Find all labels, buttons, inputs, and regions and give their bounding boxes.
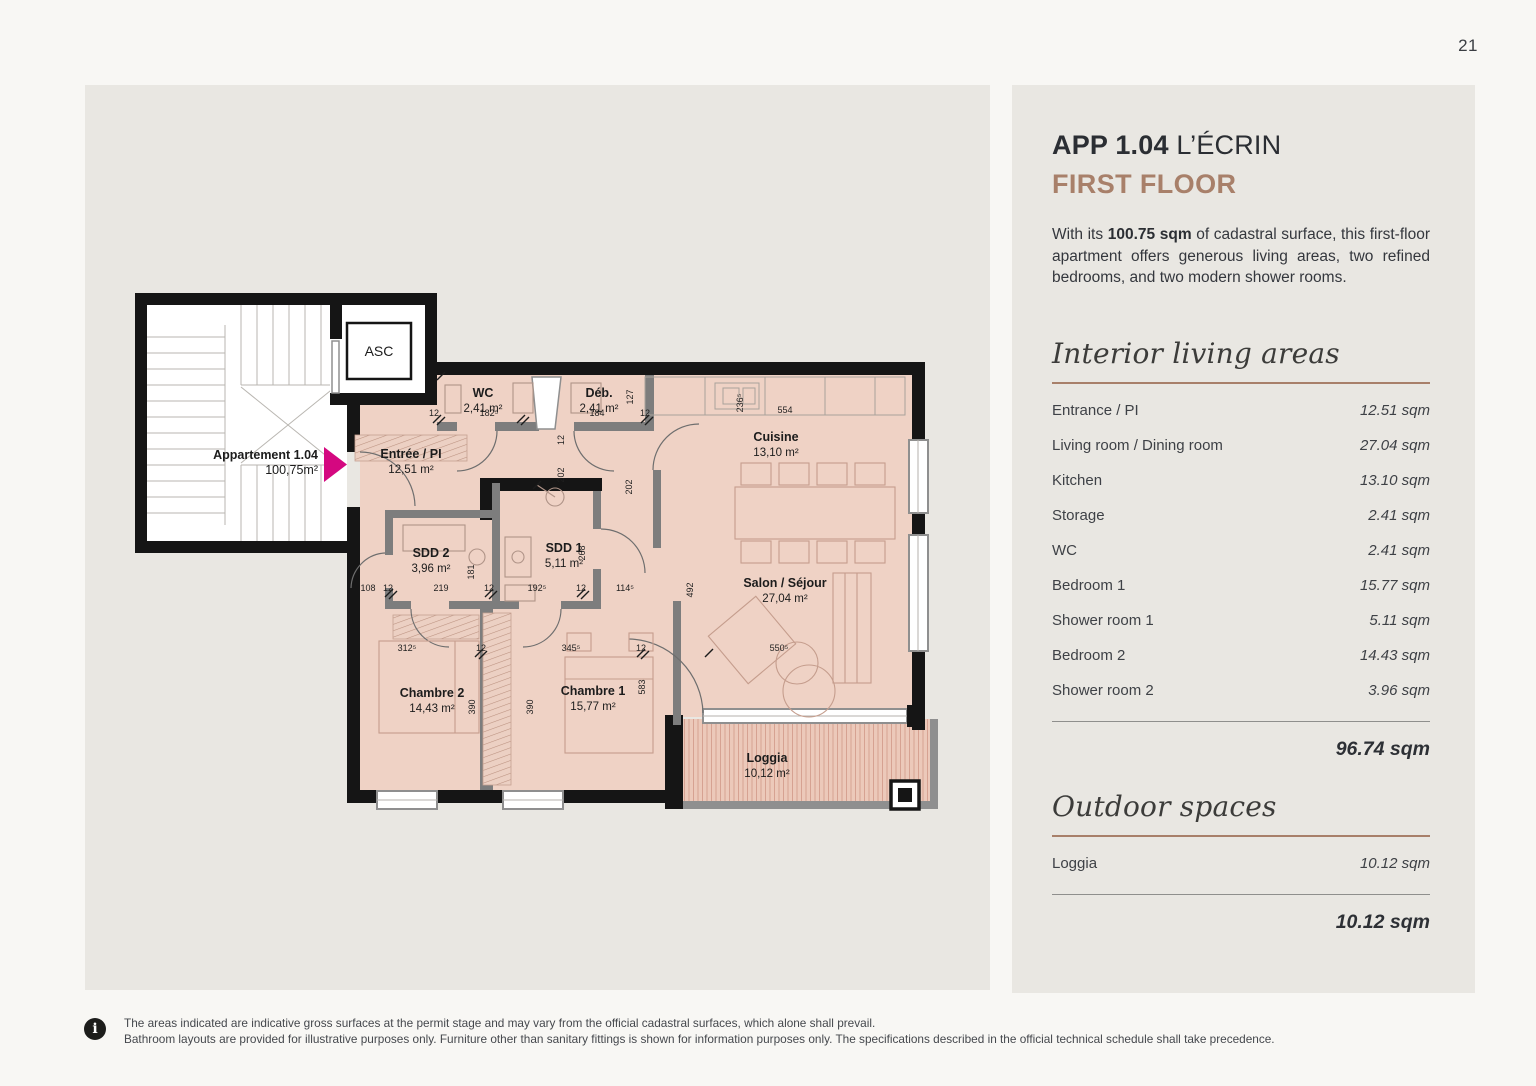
area-row-loggia: Loggia10.12 sqm xyxy=(1052,846,1430,881)
room-label-sdd2: SDD 2 xyxy=(413,546,450,560)
apartment-title: APP 1.04 L’ÉCRIN xyxy=(1052,128,1430,162)
svg-text:192⁵: 192⁵ xyxy=(528,583,547,593)
page-number: 21 xyxy=(1458,36,1478,56)
outdoor-total: 10.12 sqm xyxy=(1052,911,1430,934)
info-icon: i xyxy=(84,1018,106,1040)
svg-text:12: 12 xyxy=(476,643,486,653)
divider-brown-interior xyxy=(1052,382,1430,384)
apartment-description: With its 100.75 sqm of cadastral surface… xyxy=(1052,224,1430,289)
svg-text:10,12 m²: 10,12 m² xyxy=(744,768,790,780)
room-label-loggia: Loggia xyxy=(747,751,789,765)
svg-text:2,41 m²: 2,41 m² xyxy=(580,403,619,415)
divider-gray-interior xyxy=(1052,721,1430,722)
room-label-deb: Déb. xyxy=(585,386,612,400)
disclaimer-line-2: Bathroom layouts are provided for illust… xyxy=(124,1032,1484,1048)
outdoor-spaces-heading: Outdoor spaces xyxy=(1052,790,1430,823)
svg-text:236⁵: 236⁵ xyxy=(735,393,745,412)
svg-text:12: 12 xyxy=(556,435,566,445)
room-label-chambre2: Chambre 2 xyxy=(400,686,465,700)
svg-text:15,77 m²: 15,77 m² xyxy=(570,701,616,713)
area-row-shower2: Shower room 23.96 sqm xyxy=(1052,673,1430,708)
svg-text:583: 583 xyxy=(637,679,647,694)
area-row-entrance: Entrance / PI12.51 sqm xyxy=(1052,393,1430,428)
svg-text:554: 554 xyxy=(777,405,792,415)
elevator-label: ASC xyxy=(365,343,394,359)
svg-text:12: 12 xyxy=(636,643,646,653)
room-label-wc: WC xyxy=(473,386,494,400)
floor-plan-panel: ASC xyxy=(85,85,990,990)
divider-gray-outdoor xyxy=(1052,894,1430,895)
svg-text:5,11 m²: 5,11 m² xyxy=(545,558,583,570)
svg-text:12: 12 xyxy=(576,583,586,593)
room-label-chambre1: Chambre 1 xyxy=(561,684,626,698)
svg-text:14,43 m²: 14,43 m² xyxy=(409,703,455,715)
svg-text:27,04 m²: 27,04 m² xyxy=(762,593,808,605)
area-row-bedroom1: Bedroom 115.77 sqm xyxy=(1052,568,1430,603)
residence-name: L’ÉCRIN xyxy=(1169,130,1282,160)
svg-text:12: 12 xyxy=(429,408,439,418)
svg-text:13,10 m²: 13,10 m² xyxy=(753,447,799,459)
area-row-storage: Storage2.41 sqm xyxy=(1052,498,1430,533)
window-right-1 xyxy=(909,440,928,513)
sliding-door xyxy=(703,709,907,723)
area-row-shower1: Shower room 15.11 sqm xyxy=(1052,603,1430,638)
svg-text:12: 12 xyxy=(383,583,393,593)
wardrobe-hatch-center xyxy=(483,613,511,785)
window-right-2 xyxy=(909,535,928,651)
apartment-number: APP 1.04 xyxy=(1052,130,1169,160)
disclaimer-line-1: The areas indicated are indicative gross… xyxy=(124,1016,1484,1032)
room-label-salon: Salon / Séjour xyxy=(743,576,826,590)
duct-shaft xyxy=(532,377,561,429)
interior-areas-heading: Interior living areas xyxy=(1052,337,1430,370)
window-bottom-1 xyxy=(377,791,437,809)
cadastral-surface: 100.75 sqm xyxy=(1108,226,1192,243)
outdoor-spaces-list: Loggia10.12 sqm xyxy=(1052,846,1430,881)
svg-text:345⁵: 345⁵ xyxy=(562,643,581,653)
divider-brown-outdoor xyxy=(1052,835,1430,837)
svg-text:390: 390 xyxy=(525,699,535,714)
svg-text:12: 12 xyxy=(484,583,494,593)
svg-text:550⁵: 550⁵ xyxy=(770,643,789,653)
footer-disclaimer: i The areas indicated are indicative gro… xyxy=(84,1016,1484,1047)
area-row-living: Living room / Dining room27.04 sqm xyxy=(1052,428,1430,463)
interior-total: 96.74 sqm xyxy=(1052,738,1430,761)
svg-text:202: 202 xyxy=(556,467,566,482)
svg-text:100,75m²: 100,75m² xyxy=(265,463,318,477)
svg-text:312⁵: 312⁵ xyxy=(398,643,417,653)
area-row-wc: WC2.41 sqm xyxy=(1052,533,1430,568)
svg-text:3,96 m²: 3,96 m² xyxy=(412,563,451,575)
details-panel: APP 1.04 L’ÉCRIN FIRST FLOOR With its 10… xyxy=(1012,85,1475,993)
area-row-bedroom2: Bedroom 214.43 sqm xyxy=(1052,638,1430,673)
svg-text:390: 390 xyxy=(467,699,477,714)
svg-text:202: 202 xyxy=(624,479,634,494)
floor-subtitle: FIRST FLOOR xyxy=(1052,167,1430,201)
apartment-pointer-label: Appartement 1.04 xyxy=(213,448,318,462)
room-label-entree: Entrée / PI xyxy=(380,447,441,461)
svg-text:108: 108 xyxy=(360,583,375,593)
svg-text:2,41 m²: 2,41 m² xyxy=(464,403,503,415)
svg-text:492: 492 xyxy=(685,582,695,597)
window-bottom-2 xyxy=(503,791,563,809)
svg-text:127: 127 xyxy=(625,389,635,404)
area-row-kitchen: Kitchen13.10 sqm xyxy=(1052,463,1430,498)
svg-text:181: 181 xyxy=(466,564,476,579)
svg-text:12: 12 xyxy=(640,408,650,418)
room-label-sdd1: SDD 1 xyxy=(546,541,583,555)
svg-text:114⁵: 114⁵ xyxy=(616,583,634,593)
interior-areas-list: Entrance / PI12.51 sqm Living room / Din… xyxy=(1052,393,1430,708)
room-label-cuisine: Cuisine xyxy=(753,430,798,444)
wardrobe-hatch-sdd2 xyxy=(393,615,479,639)
svg-text:12,51 m²: 12,51 m² xyxy=(388,464,434,476)
floor-plan-drawing: ASC xyxy=(85,85,990,990)
svg-text:219: 219 xyxy=(433,583,448,593)
